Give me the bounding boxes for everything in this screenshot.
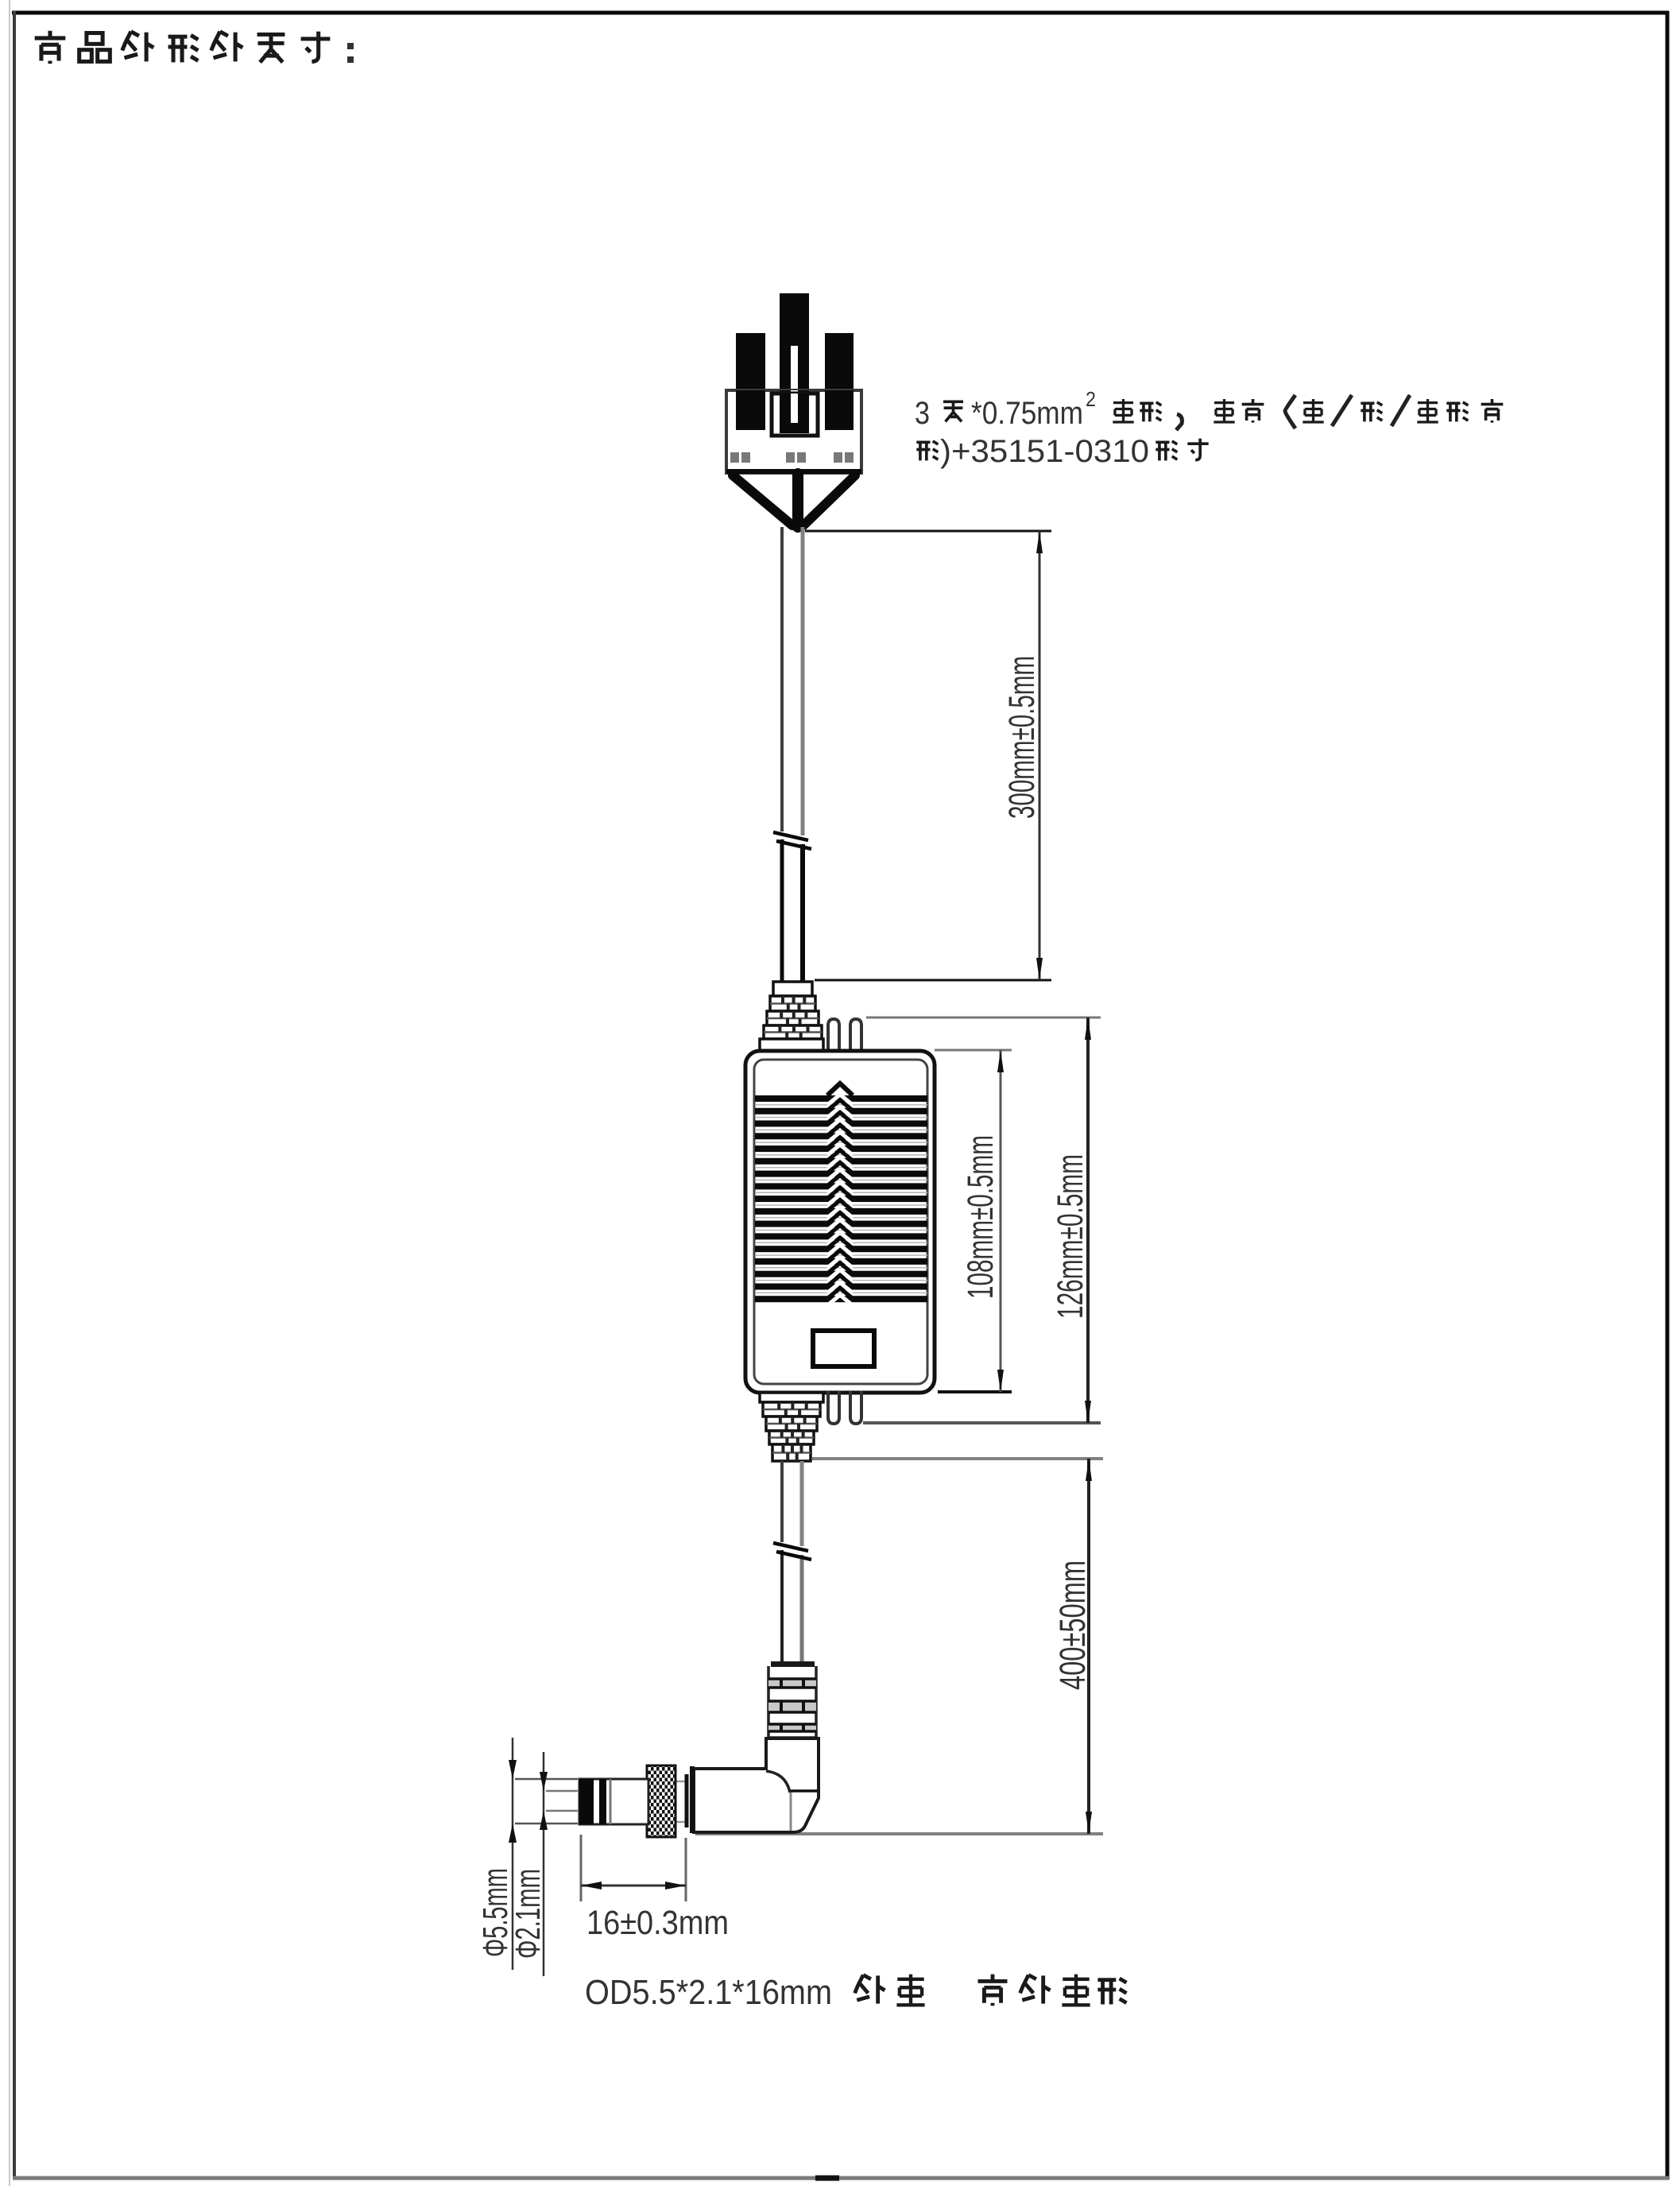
svg-text:16±0.3mm: 16±0.3mm [586, 1904, 729, 1942]
svg-text:126mm±0.5mm: 126mm±0.5mm [1050, 1154, 1090, 1319]
svg-text:108mm±0.5mm: 108mm±0.5mm [960, 1135, 1001, 1299]
svg-text:Φ2.1mm: Φ2.1mm [509, 1869, 548, 1959]
svg-text:*0.75mm: *0.75mm [971, 396, 1083, 431]
svg-text:300mm±0.5mm: 300mm±0.5mm [1001, 656, 1042, 819]
svg-text:3: 3 [915, 396, 930, 431]
svg-text:400±50mm: 400±50mm [1052, 1560, 1093, 1690]
svg-text:)+35151-0310: )+35151-0310 [940, 434, 1149, 469]
svg-text:OD5.5*2.1*16mm: OD5.5*2.1*16mm [585, 1973, 832, 2012]
svg-text:2: 2 [1086, 387, 1096, 411]
